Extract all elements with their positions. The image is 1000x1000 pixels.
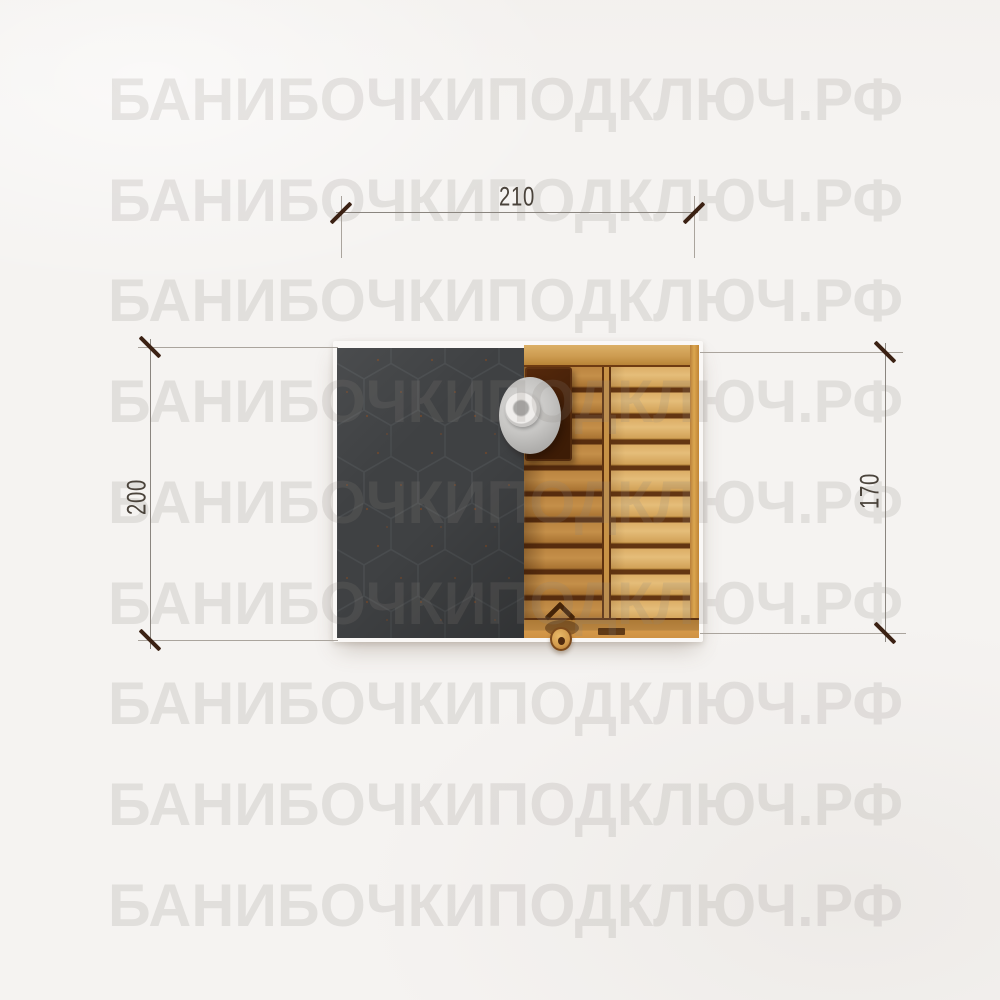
dimension-line-right — [885, 343, 886, 642]
watermark-row: БАНИБОЧКИПОДКЛЮЧ.РФ — [108, 70, 903, 130]
top-wall-board — [524, 345, 699, 367]
door-handle-hole — [558, 637, 565, 645]
dimension-label-width: 210 — [499, 184, 535, 211]
extension-line — [138, 347, 338, 348]
deck-planks-right — [611, 367, 690, 620]
watermark-row: БАНИБОЧКИПОДКЛЮЧ.РФ — [108, 271, 903, 331]
dimension-line-width — [336, 212, 698, 213]
watermark-row: БАНИБОЧКИПОДКЛЮЧ.РФ — [108, 876, 903, 936]
dimension-label-left-depth: 200 — [124, 479, 151, 515]
right-wall-board — [690, 345, 699, 638]
extension-line — [138, 640, 338, 641]
bottom-joint-shadow — [598, 628, 625, 635]
extension-line — [341, 196, 342, 258]
dimension-label-right-depth: 170 — [857, 473, 884, 509]
extension-line — [694, 196, 695, 258]
extension-line — [700, 633, 906, 634]
roof-shading — [337, 348, 524, 638]
watermark-row: БАНИБОЧКИПОДКЛЮЧ.РФ — [108, 775, 903, 835]
sauna-plan-screenshot: БАНИБОЧКИПОДКЛЮЧ.РФ БАНИБОЧКИПОДКЛЮЧ.РФ … — [0, 0, 1000, 1000]
extension-line — [700, 352, 903, 353]
watermark-row: БАНИБОЧКИПОДКЛЮЧ.РФ — [108, 674, 903, 734]
roof-plan — [337, 348, 524, 638]
deck-divider-board — [602, 367, 611, 620]
chimney-pipe-ring — [505, 392, 540, 427]
